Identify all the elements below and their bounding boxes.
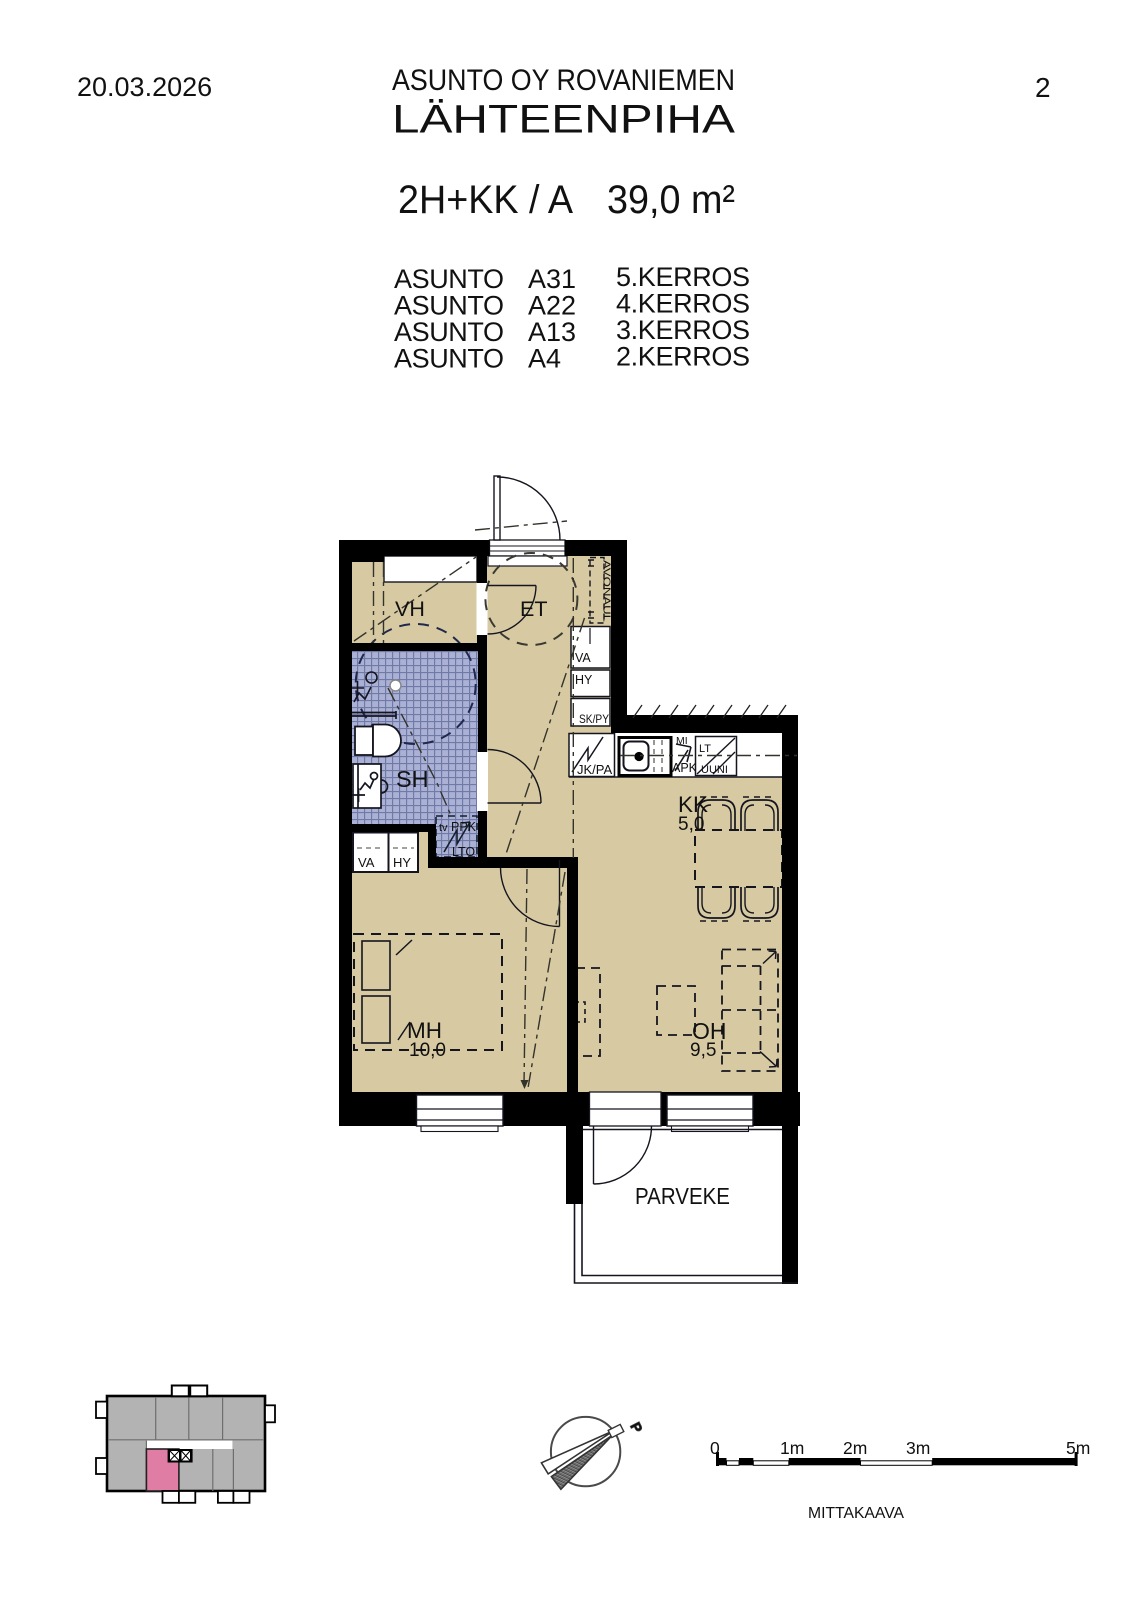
- svg-text:A22: A22: [528, 291, 576, 321]
- svg-text:HY: HY: [575, 673, 593, 687]
- svg-text:LTO: LTO: [452, 845, 475, 859]
- svg-text:VH: VH: [395, 597, 425, 621]
- svg-text:AVONAUL: AVONAUL: [601, 560, 613, 622]
- svg-text:MI: MI: [676, 735, 688, 747]
- svg-text:ASUNTO: ASUNTO: [394, 264, 504, 294]
- svg-text:ASUNTO: ASUNTO: [394, 344, 504, 374]
- svg-text:20.03.2026: 20.03.2026: [77, 72, 212, 102]
- svg-text:3.KERROS: 3.KERROS: [616, 315, 750, 345]
- svg-text:SK/PY: SK/PY: [579, 712, 609, 726]
- svg-text:10,0: 10,0: [409, 1040, 446, 1061]
- svg-text:4.KERROS: 4.KERROS: [616, 289, 750, 319]
- svg-text:ASUNTO: ASUNTO: [394, 317, 504, 347]
- svg-text:9,5: 9,5: [690, 1040, 716, 1061]
- svg-text:5m: 5m: [1066, 1438, 1090, 1458]
- svg-text:A13: A13: [528, 317, 576, 347]
- svg-text:5,0: 5,0: [678, 814, 704, 835]
- svg-text:ET: ET: [520, 597, 547, 621]
- svg-text:PPK: PPK: [451, 820, 477, 834]
- svg-text:0: 0: [710, 1438, 720, 1458]
- svg-text:VA: VA: [358, 855, 375, 870]
- svg-text:LÄHTEENPIHA: LÄHTEENPIHA: [392, 98, 735, 142]
- svg-text:UUNI: UUNI: [701, 764, 728, 776]
- svg-text:2: 2: [1035, 72, 1051, 103]
- svg-text:VA: VA: [575, 651, 591, 665]
- svg-text:MITTAKAAVA: MITTAKAAVA: [808, 1505, 905, 1522]
- svg-text:3m: 3m: [906, 1438, 930, 1458]
- svg-text:ASUNTO: ASUNTO: [394, 291, 504, 321]
- svg-text:APK: APK: [672, 761, 698, 775]
- svg-text:tv: tv: [439, 822, 448, 834]
- svg-text:ASUNTO OY ROVANIEMEN: ASUNTO OY ROVANIEMEN: [392, 64, 735, 97]
- svg-text:PARVEKE: PARVEKE: [635, 1183, 730, 1209]
- svg-text:A31: A31: [528, 264, 576, 294]
- svg-text:HY: HY: [393, 855, 411, 870]
- svg-text:5.KERROS: 5.KERROS: [616, 262, 750, 292]
- svg-text:A4: A4: [528, 344, 561, 374]
- svg-text:2m: 2m: [843, 1438, 867, 1458]
- svg-text:JK/PA: JK/PA: [577, 762, 612, 777]
- svg-text:2.KERROS: 2.KERROS: [616, 342, 750, 372]
- svg-text:39,0 m²: 39,0 m²: [607, 178, 735, 222]
- svg-text:1m: 1m: [780, 1438, 804, 1458]
- svg-text:2H+KK / A: 2H+KK / A: [398, 178, 573, 222]
- svg-text:SH: SH: [396, 766, 429, 792]
- svg-text:LT: LT: [699, 743, 711, 755]
